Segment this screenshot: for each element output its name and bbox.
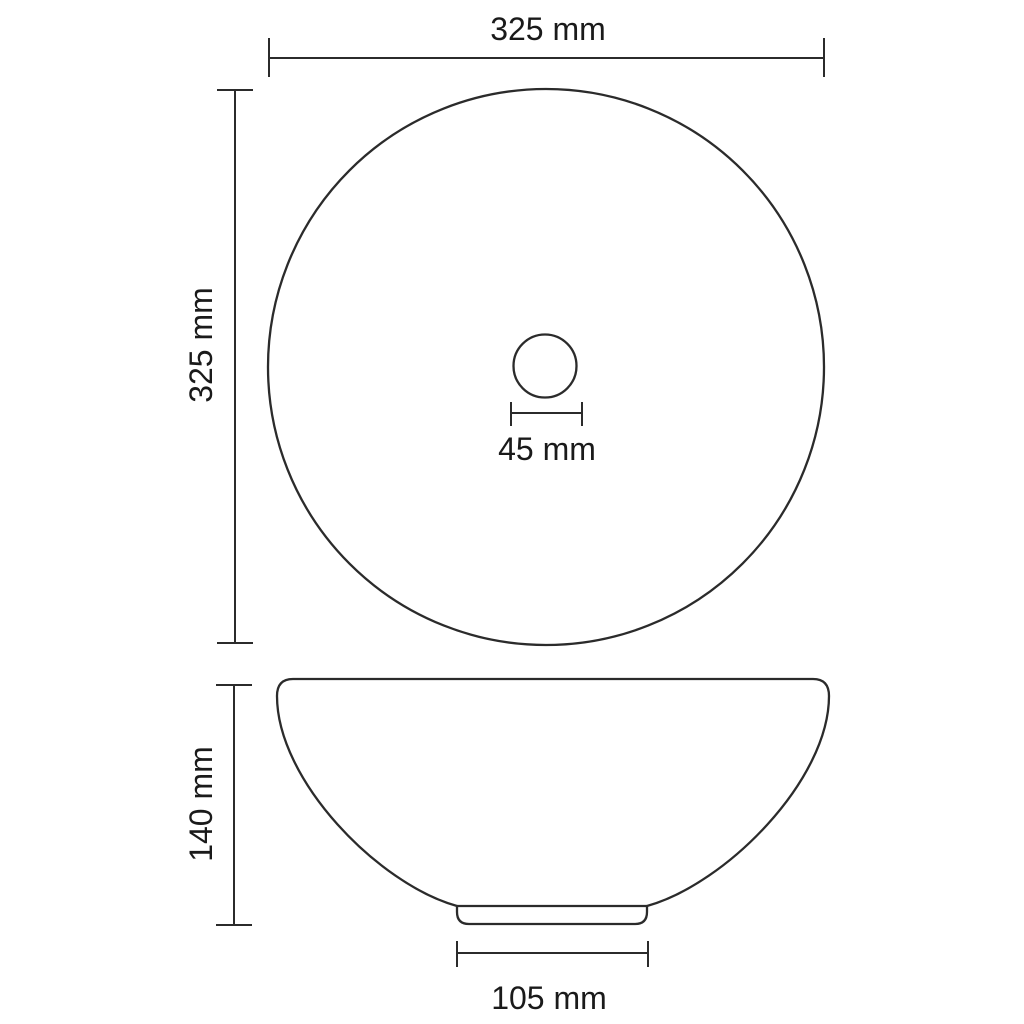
label-base-width: 105 mm [491, 980, 607, 1016]
label-top-width: 325 mm [490, 11, 606, 47]
label-drain-width: 45 mm [498, 431, 596, 467]
sink-dimension-drawing: 325 mm 325 mm 45 mm 140 mm 105 mm [0, 0, 1024, 1024]
drawing-background [0, 0, 1024, 1024]
label-top-view-height: 325 mm [183, 287, 219, 403]
label-side-height: 140 mm [183, 746, 219, 862]
technical-drawing-page: 325 mm 325 mm 45 mm 140 mm 105 mm [0, 0, 1024, 1024]
